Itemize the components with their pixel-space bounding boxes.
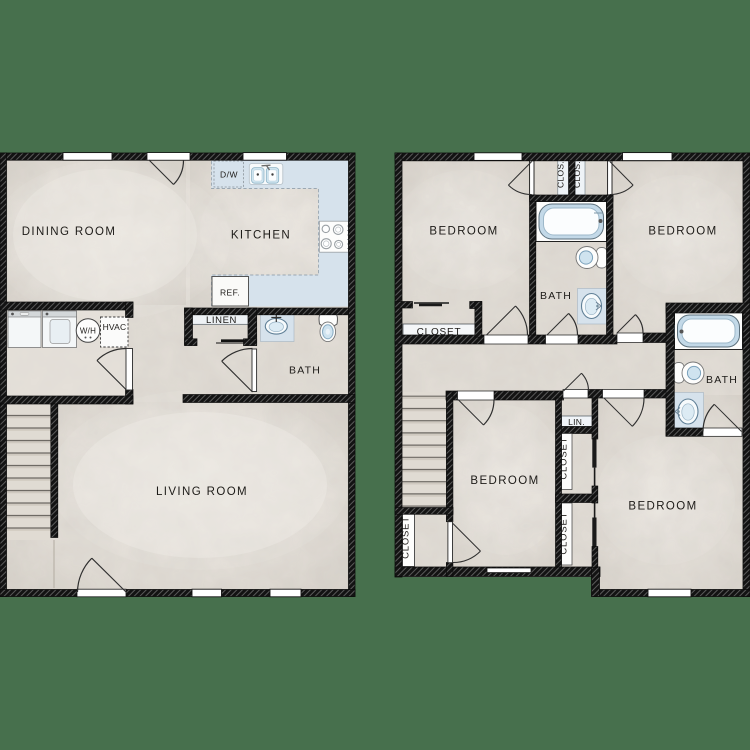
svg-text:BATH: BATH xyxy=(540,290,572,302)
svg-text:DINING ROOM: DINING ROOM xyxy=(22,226,117,238)
svg-text:D/W: D/W xyxy=(220,170,238,180)
svg-text:HVAC: HVAC xyxy=(103,322,127,332)
svg-text:KITCHEN: KITCHEN xyxy=(231,230,291,242)
svg-text:W/H: W/H xyxy=(80,327,96,336)
svg-text:BEDROOM: BEDROOM xyxy=(628,501,697,513)
svg-text:BEDROOM: BEDROOM xyxy=(648,226,717,238)
svg-text:BATH: BATH xyxy=(289,365,321,377)
svg-text:LIVING ROOM: LIVING ROOM xyxy=(156,486,248,498)
svg-text:BEDROOM: BEDROOM xyxy=(470,475,539,487)
svg-text:REF.: REF. xyxy=(220,288,240,298)
svg-text:BEDROOM: BEDROOM xyxy=(429,226,498,238)
svg-text:BATH: BATH xyxy=(706,374,738,386)
svg-text:LINEN: LINEN xyxy=(206,315,237,326)
svg-text:CLOS.: CLOS. xyxy=(555,161,565,188)
svg-text:LIN.: LIN. xyxy=(568,417,585,427)
